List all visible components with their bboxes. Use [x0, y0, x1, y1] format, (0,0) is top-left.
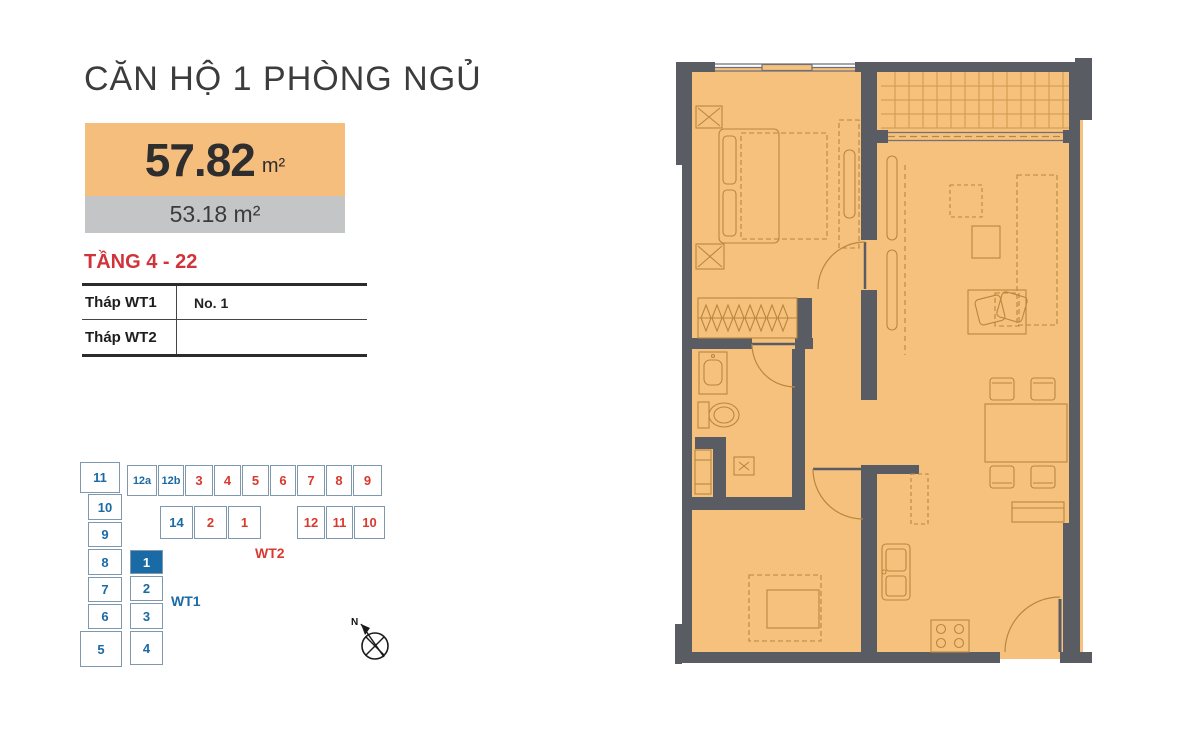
- unit-cell: 12a: [127, 465, 157, 496]
- unit-cell: 14: [160, 506, 193, 539]
- tower-wt2-label: Tháp WT2: [82, 329, 176, 346]
- unit-cell-highlighted: 1: [130, 550, 163, 574]
- unit-cell: 7: [88, 577, 122, 602]
- gross-area-box: 57.82 m²: [85, 123, 345, 196]
- tower-wt1-label: Tháp WT1: [82, 294, 176, 311]
- net-area-box: 53.18 m²: [85, 196, 345, 233]
- north-needle: [361, 624, 370, 635]
- unit-cell: 6: [88, 604, 122, 629]
- table-divider: [176, 286, 177, 354]
- tower-table: Tháp WT1 No. 1 Tháp WT2: [82, 283, 367, 357]
- unit-cell: 2: [194, 506, 227, 539]
- unit-cell: 8: [88, 549, 122, 575]
- unit-cell: 12b: [158, 465, 184, 496]
- unit-cell: 4: [214, 465, 241, 496]
- floor-range-label: TẦNG 4 - 22: [84, 251, 197, 274]
- unit-cell: 9: [353, 465, 382, 496]
- unit-cell: 8: [326, 465, 352, 496]
- north-label: N: [351, 617, 358, 628]
- window-panel: [762, 65, 812, 71]
- unit-cell: 5: [80, 631, 122, 667]
- gross-area-value: 57.82: [145, 133, 255, 187]
- page-title: CĂN HỘ 1 PHÒNG NGỦ: [84, 60, 482, 99]
- unit-cell: 12: [297, 506, 325, 539]
- table-row: Tháp WT1 No. 1: [82, 286, 367, 320]
- unit-cell: 10: [354, 506, 385, 539]
- unit-cell: 6: [270, 465, 296, 496]
- unit-cell: 4: [130, 631, 163, 665]
- tower-wt1-tag: WT1: [171, 593, 201, 609]
- unit-cell: 11: [80, 462, 120, 493]
- tower-wt2-tag: WT2: [255, 545, 285, 561]
- gross-area-unit: m²: [262, 155, 285, 178]
- unit-cell: 1: [228, 506, 261, 539]
- unit-cell: 3: [130, 603, 163, 629]
- unit-cell: 2: [130, 576, 163, 601]
- table-row: Tháp WT2: [82, 320, 367, 354]
- tower-wt1-value: No. 1: [176, 295, 367, 311]
- unit-cell: 7: [297, 465, 325, 496]
- compass-icon: N: [345, 610, 405, 670]
- floor-plan: [665, 50, 1105, 675]
- unit-cell: 3: [185, 465, 213, 496]
- unit-cell: 10: [88, 494, 122, 520]
- unit-cell: 11: [326, 506, 353, 539]
- unit-cell: 5: [242, 465, 269, 496]
- key-plan: 11 10 9 8 7 6 5 1 2 3 4 12a 12b 3 4 5 6 …: [75, 455, 405, 685]
- unit-cell: 9: [88, 522, 122, 547]
